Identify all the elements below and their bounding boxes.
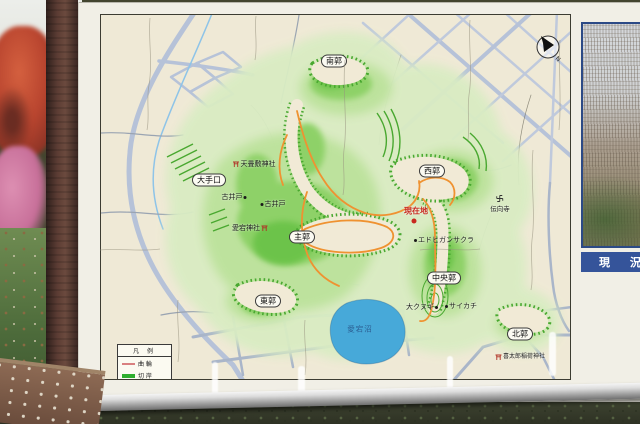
legend-item-kuruwa: 曲 輪 [118,357,171,369]
peeled-streak [212,362,218,396]
enclosure-pill-east: 東郭 [255,295,281,308]
big-oak-label: 大クヌギ [406,303,438,311]
wooden-post [46,0,78,424]
torii-icon [495,354,502,360]
edohigan-sakura-label: エドヒガンサクラ [414,236,474,244]
legend-item-kirigishi: 切 岸 [118,369,171,380]
kirigishi-swatch [122,374,135,378]
shrine-top-label: 天畳敷神社 [233,160,276,168]
enclosure-pill-central: 中央郭 [427,272,461,285]
old-well-west-label: 古井戸 [222,193,247,201]
tree-dot [445,305,448,308]
well-dot [244,196,247,199]
torii-icon [261,225,268,231]
temple-label: 伝向寺 [490,195,510,213]
atago-shrine-label: 愛宕神社 [232,224,268,232]
peeled-streak [549,332,556,376]
park-map-panel: N 南郭 西郭 大手口 主郭 東郭 中央郭 北郭 天畳敷神社 古井戸 古井戸 [100,14,571,380]
current-location-label: 現在地 [404,206,428,217]
manji-icon [497,195,504,202]
old-well-east-label: 古井戸 [261,200,286,208]
map-legend: 凡 例 曲 輪 切 岸 散策路 [117,344,172,380]
site-photo [581,22,640,248]
tree-dot [435,306,438,309]
enclosure-pill-west: 西郭 [419,165,445,178]
signboard-photo: N 南郭 西郭 大手口 主郭 東郭 中央郭 北郭 天畳敷神社 古井戸 古井戸 [0,0,640,424]
kitaro-inari-shrine-label: 喜太郎稲荷神社 [495,353,545,361]
enclosure-pill-north: 北郭 [507,328,533,341]
panel-header: 現 況 [581,252,640,272]
legend-title: 凡 例 [118,345,171,357]
torii-icon [233,161,240,167]
tree-dot [414,239,417,242]
enclosure-pill-main: 主郭 [289,231,315,244]
enclosure-pill-south: 南郭 [321,55,347,68]
current-location-dot [412,219,417,224]
enclosure-pill-oteguchi: 大手口 [192,174,226,187]
well-dot [261,203,264,206]
kuruwa-swatch [122,363,135,365]
saikachi-label: サイカチ [445,302,477,310]
lake-label: 愛宕沼 [347,324,373,335]
